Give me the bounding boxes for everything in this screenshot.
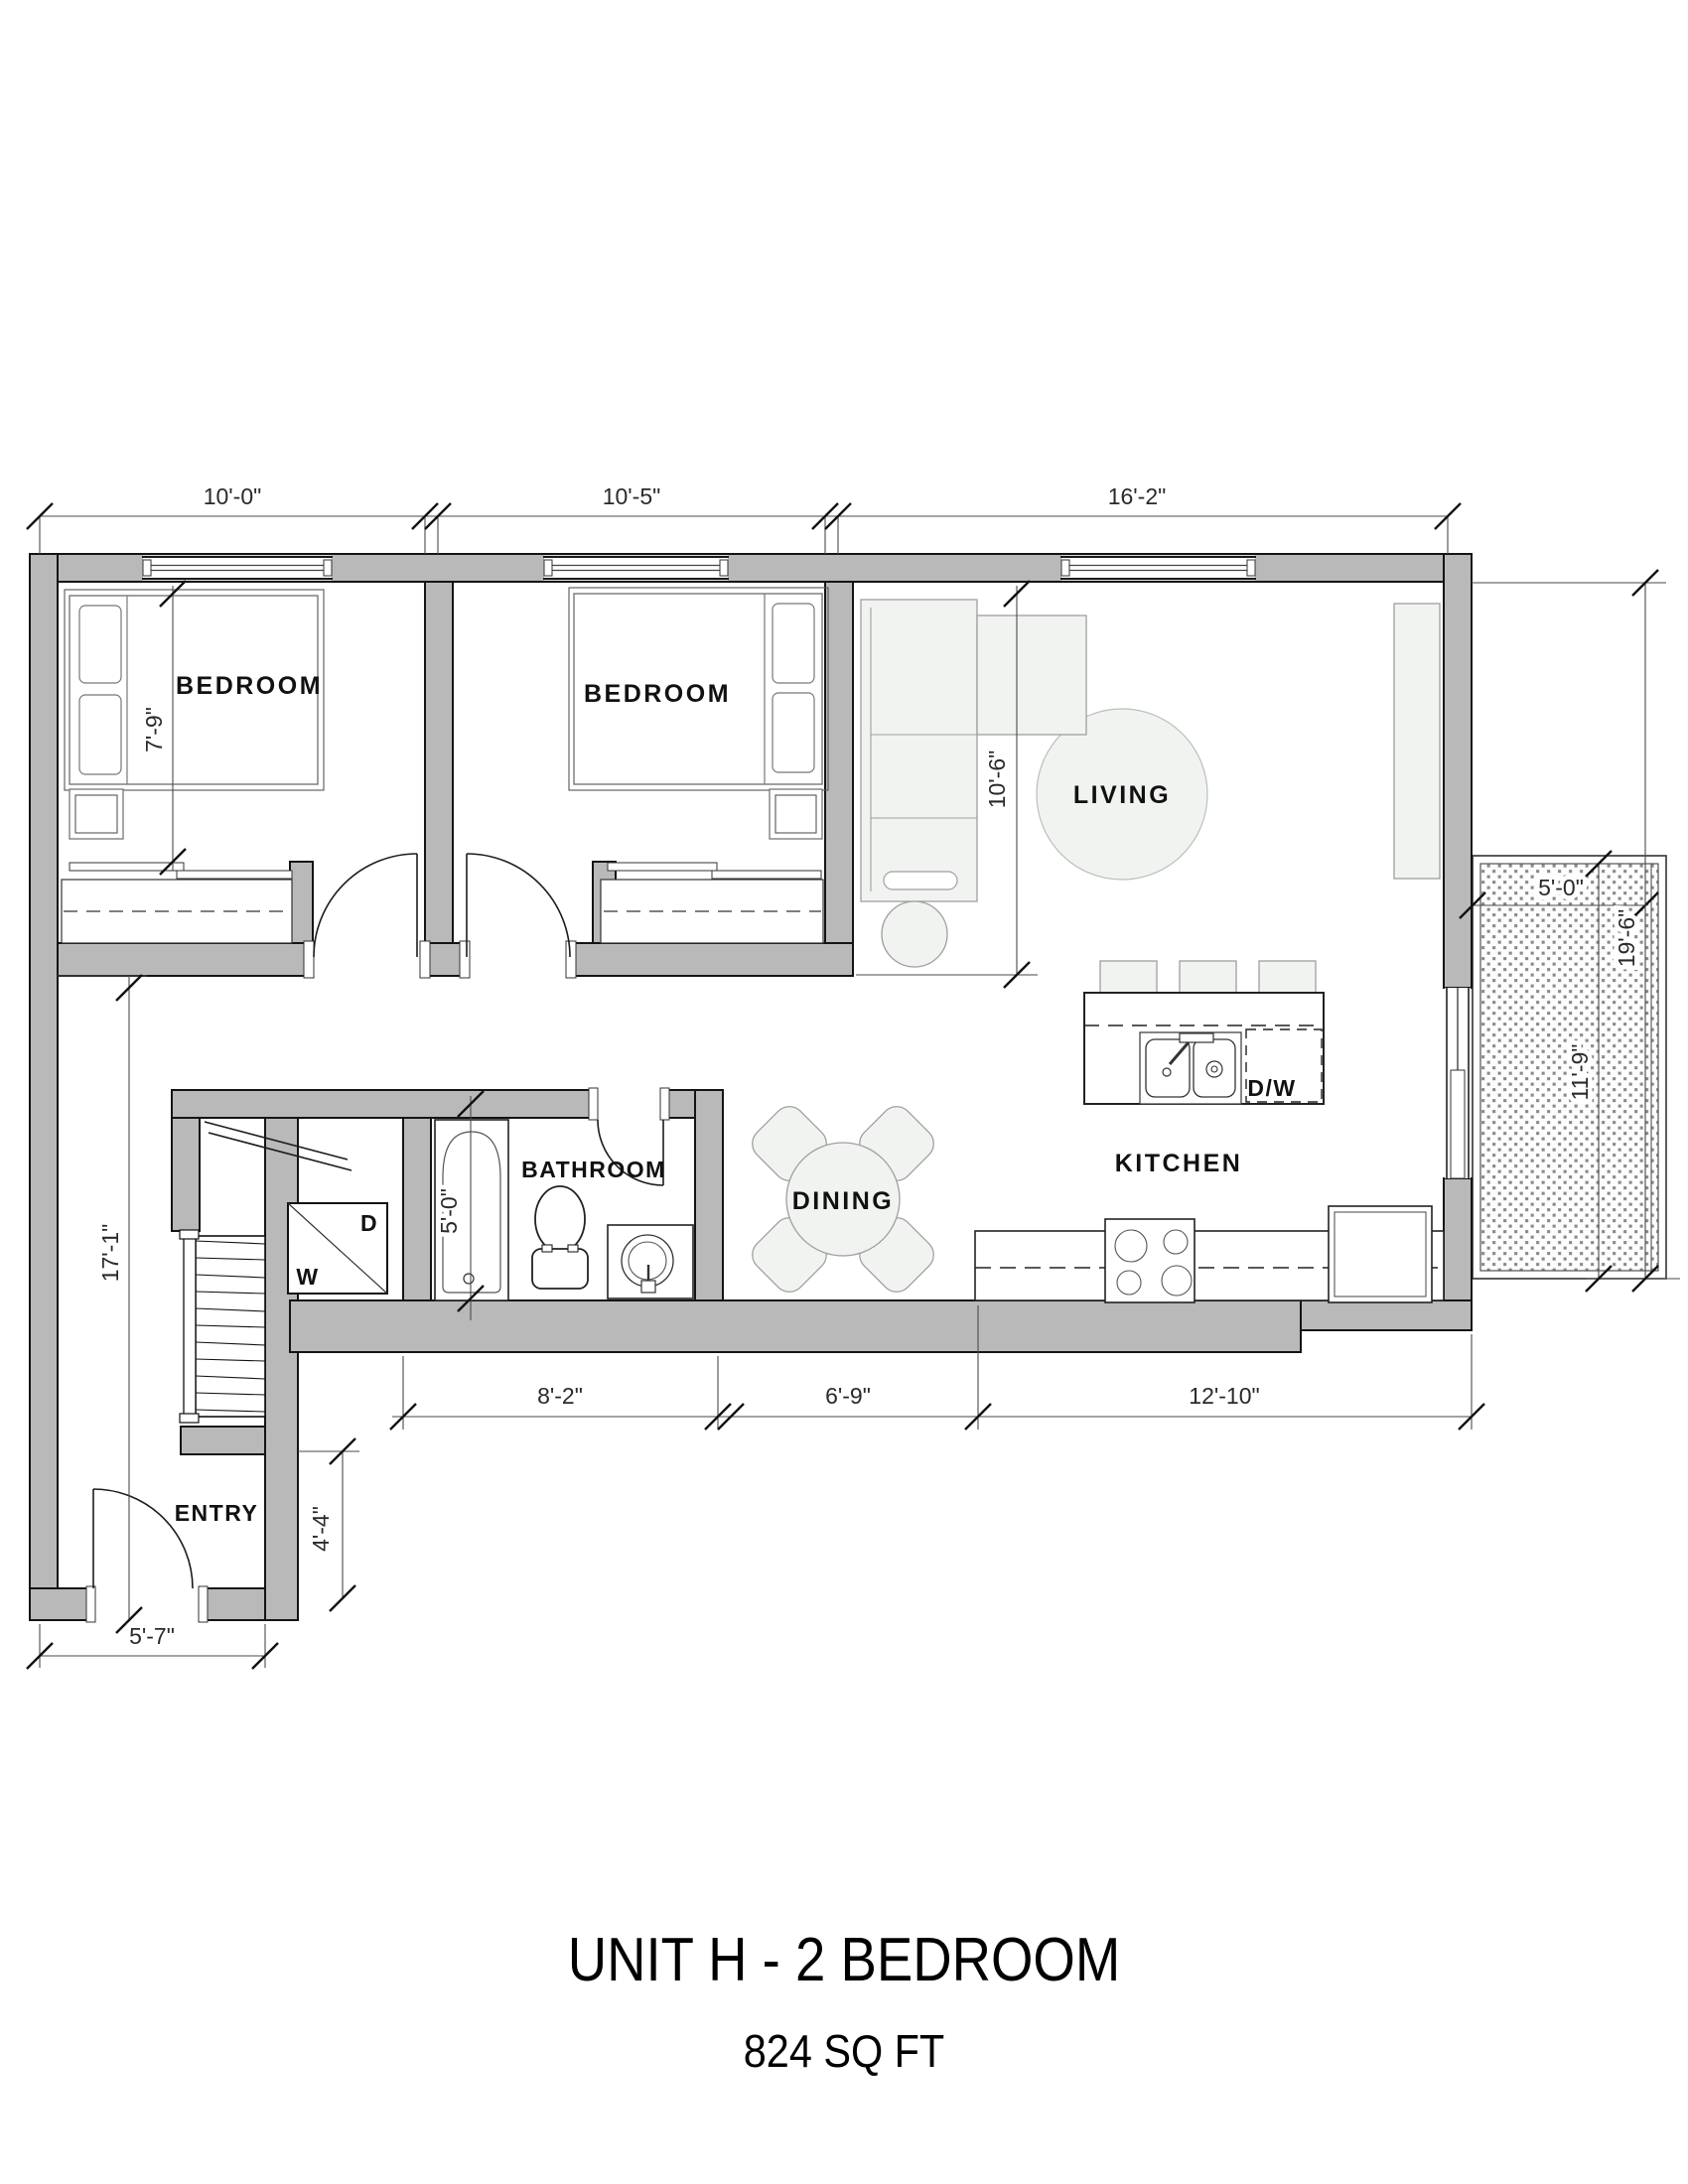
dim-entry-notch: 4'-4": [308, 1506, 334, 1552]
bath-left-wall: [403, 1118, 431, 1300]
sofa-chaise: [977, 615, 1086, 735]
dining-label: DINING: [792, 1187, 895, 1215]
bedroom1-furniture: [65, 590, 324, 839]
bedroom2-closet: [601, 863, 823, 943]
bedroom2-window: [544, 556, 728, 581]
ottoman: [882, 901, 947, 967]
closet2-slider-panel-2: [712, 871, 821, 879]
closet2-slider-panel-1: [608, 863, 717, 871]
dim-bottom-2: 6'-9": [825, 1383, 871, 1409]
toilet-bowl: [535, 1186, 585, 1252]
bath-block-top-wall: [172, 1090, 596, 1118]
sofa-armrest: [884, 872, 957, 889]
bathroom-fixtures: [435, 1120, 693, 1300]
bar-stool-3: [1259, 961, 1316, 993]
kitchen-label: KITCHEN: [1115, 1150, 1243, 1177]
dimension-top: 10'-0" 10'-5" 16'-2": [27, 483, 1461, 554]
entry-label: ENTRY: [175, 1500, 259, 1526]
bed2-pillow-2: [773, 693, 814, 772]
dim-top-3: 16'-2": [1108, 483, 1167, 509]
dim-entry-width: 5'-7": [129, 1623, 175, 1649]
right-wall-upper: [1444, 554, 1472, 988]
dim-bedroom1-depth: 7'-9": [141, 707, 167, 752]
entry-bottom-wall-left: [30, 1588, 93, 1620]
bar-stool-2: [1180, 961, 1236, 993]
title-block: UNIT H - 2 BEDROOM 824 SQ FT: [568, 1926, 1121, 2078]
sink-faucet: [1180, 1033, 1213, 1042]
bedroom2-door: [467, 854, 570, 957]
floorplan-page: D/W D W: [0, 0, 1688, 2184]
refrigerator: [1329, 1206, 1432, 1302]
bottom-wall-kitchen-step: [1301, 1300, 1472, 1330]
bed2-pillow-1: [773, 604, 814, 683]
windows: [143, 556, 1255, 581]
unit-title: UNIT H - 2 BEDROOM: [568, 1926, 1121, 1994]
dim-top-2: 10'-5": [603, 483, 661, 509]
bottom-wall-main: [290, 1300, 1301, 1352]
toilet-tank: [532, 1249, 588, 1289]
dim-living-depth: 10'-6": [984, 751, 1010, 809]
bedroom2-living-wall: [825, 582, 853, 943]
dishwasher-label: D/W: [1247, 1075, 1296, 1101]
bar-stool-1: [1100, 961, 1157, 993]
bedroom2-furniture: [569, 588, 828, 839]
dim-left-height: 17'-1": [97, 1224, 123, 1283]
bedroom1-door: [314, 854, 417, 957]
balcony-sliding-door: [1445, 988, 1471, 1178]
washer-label: W: [296, 1264, 319, 1290]
bed1-pillow-2: [79, 695, 121, 774]
dimension-entry-notch: 4'-4": [298, 1438, 359, 1611]
closet1-stub: [290, 862, 313, 943]
dim-balcony-width: 5'-0": [1538, 875, 1584, 900]
living-window: [1061, 556, 1255, 581]
floorplan-drawing: D/W D W: [0, 0, 1688, 2184]
bathroom-label: BATHROOM: [521, 1157, 666, 1182]
dim-right-height: 19'-6": [1614, 909, 1639, 968]
bedroom1-window: [143, 556, 332, 581]
stair-rail: [184, 1236, 196, 1417]
dryer-label: D: [360, 1210, 378, 1236]
laundry-left-wall: [172, 1118, 200, 1231]
bedroom1-closet-wall: [58, 943, 313, 976]
bedroom1-closet: [62, 863, 292, 943]
dim-bottom-1: 8'-2": [537, 1383, 583, 1409]
sofa-body: [861, 600, 977, 901]
stair-entry-right-wall: [265, 1118, 298, 1620]
tv-console: [1394, 604, 1440, 879]
slider-panel: [1451, 1070, 1465, 1178]
unit-area: 824 SQ FT: [744, 2026, 944, 2078]
laundry-closet: D W: [288, 1203, 387, 1294]
dim-bottom-3: 12'-10": [1189, 1383, 1259, 1409]
bedroom2-label: BEDROOM: [584, 680, 731, 708]
under-stair-wall: [181, 1427, 265, 1454]
bedroom2-closet-wall: [569, 943, 853, 976]
stairs: [180, 1230, 265, 1423]
bed1-nightstand: [70, 789, 123, 839]
left-wall: [30, 554, 58, 1620]
closet1-slider-panel-2: [177, 871, 292, 879]
dim-balcony-length: 11'-9": [1567, 1044, 1593, 1101]
dimension-left-height: 17'-1": [58, 975, 147, 1633]
living-label: LIVING: [1073, 781, 1171, 809]
bed1-pillow-1: [79, 606, 121, 683]
dim-top-1: 10'-0": [204, 483, 262, 509]
kitchen-counter-run: [975, 1206, 1444, 1302]
dim-tub: 5'-0": [436, 1188, 462, 1234]
bedroom1-label: BEDROOM: [176, 672, 323, 700]
bed2-nightstand: [770, 789, 822, 839]
dimension-entry-width: 5'-7": [27, 1623, 278, 1669]
kitchen-island: D/W: [1084, 961, 1324, 1104]
sink-basin-right: [1194, 1039, 1235, 1097]
bedroom-divider-wall: [425, 582, 453, 943]
vanity-faucet: [641, 1281, 655, 1293]
